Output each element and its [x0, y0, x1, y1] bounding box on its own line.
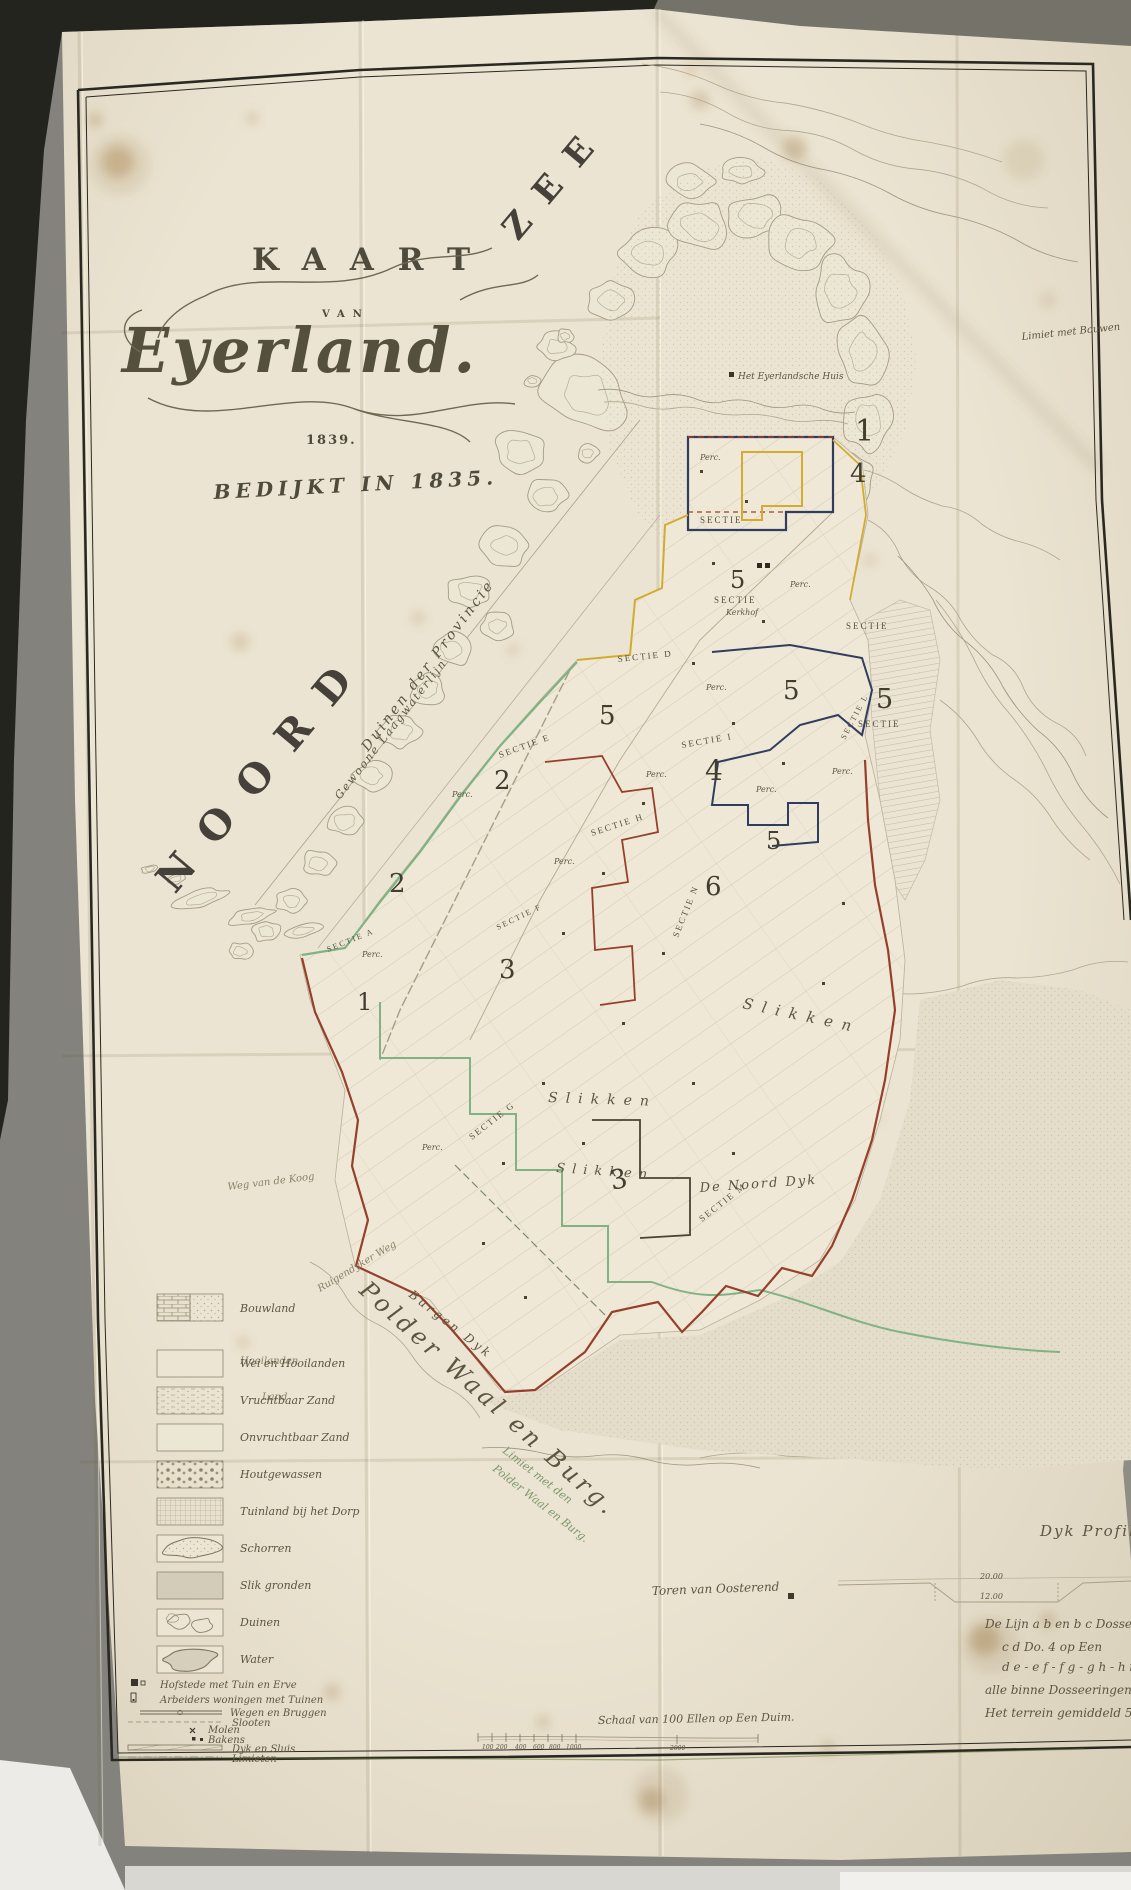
- legend-swatch-onvruchtbaar: [157, 1424, 223, 1451]
- label-eyerlandsche-huis: Het Eyerlandsche Huis: [737, 372, 844, 382]
- legend-label: Schorren: [240, 1542, 292, 1555]
- section-number: 6: [705, 872, 722, 902]
- scale-tick: 600: [533, 1744, 545, 1751]
- legend-label: Water: [240, 1653, 274, 1666]
- profile-value-bottom: 12.00: [980, 1592, 1003, 1601]
- profile-note: De Lijn a b en b c Dosseering 6 op Een: [984, 1617, 1131, 1631]
- scale-tick: 1000: [566, 1744, 581, 1751]
- map-title-kaart: KAART: [252, 242, 494, 278]
- legend-label: Arbeiders woningen met Tuinen: [159, 1695, 323, 1706]
- sectie-label: SECTIE: [858, 719, 901, 729]
- legend-swatch-bouwland: [157, 1294, 223, 1321]
- perc-label: Perc.: [699, 453, 721, 462]
- legend-label: Bouwland: [239, 1302, 295, 1315]
- perc-label: Perc.: [831, 767, 853, 776]
- legend-label: Hofstede met Tuin en Erve: [159, 1680, 297, 1691]
- map-title-name: Eyerland.: [120, 314, 478, 387]
- legend-swatch-wei: [157, 1350, 223, 1377]
- sectie-label: SECTIE: [846, 621, 889, 631]
- backdrop-bottom-white: [840, 1872, 1131, 1890]
- section-number: 5: [766, 827, 781, 855]
- perc-label: Perc.: [789, 580, 811, 589]
- legend-swatch-tuinland: [157, 1498, 223, 1525]
- profile-note: Het terrein gemiddeld 50 dm + V: [984, 1706, 1131, 1720]
- legend-swatch-vruchtbaar: [157, 1387, 223, 1414]
- legend-label: Slik gronden: [240, 1579, 311, 1592]
- profile-note: d e - e f - f g - g h - h i - i k: [1002, 1660, 1131, 1674]
- perc-label: Perc.: [553, 857, 575, 866]
- sectie-sublabel: Kerkhof: [725, 608, 760, 617]
- legend-label: Duinen: [239, 1616, 280, 1629]
- scale-tick: 200: [495, 1744, 508, 1751]
- profile-note: c d Do. 4 op Een: [1002, 1640, 1102, 1654]
- legend-label: Limieten: [231, 1754, 277, 1765]
- perc-label: Perc.: [705, 683, 727, 692]
- scale-tick: 100: [482, 1744, 494, 1751]
- section-number: 4: [705, 754, 723, 787]
- section-number: 5: [876, 684, 893, 715]
- profile-note: alle binne Dosseeringen 2 op Een.: [985, 1683, 1131, 1697]
- legend-label: Wei en Hooilanden: [240, 1357, 345, 1370]
- legend-label: Vruchtbaar Zand: [240, 1394, 335, 1407]
- legend-swatch-slik: [157, 1572, 223, 1599]
- scale-tick: 800: [549, 1744, 561, 1751]
- sectie-label: SECTIE: [714, 595, 757, 605]
- perc-label: Perc.: [451, 790, 473, 799]
- section-number: 1: [357, 988, 372, 1016]
- section-number: 5: [783, 676, 800, 706]
- map-title-year: 1839.: [306, 433, 357, 448]
- legend-label: Tuinland bij het Dorp: [240, 1505, 359, 1518]
- sectie-label: SECTIE: [700, 515, 743, 525]
- perc-label: Perc.: [755, 785, 777, 794]
- antique-map-photo: KAART VAN Eyerland. 1839. BEDIJKT IN 183…: [0, 0, 1131, 1890]
- legend-swatch-houtgewassen: [157, 1461, 223, 1488]
- perc-label: Perc.: [645, 770, 667, 779]
- section-number: 5: [730, 566, 745, 594]
- scale-tick: 2000: [669, 1745, 685, 1752]
- perc-label: Perc.: [421, 1143, 443, 1152]
- scale-tick: 400: [514, 1744, 527, 1751]
- profile-value-top: 20.00: [979, 1572, 1003, 1581]
- section-number: 2: [389, 869, 406, 899]
- section-number: 2: [494, 766, 511, 796]
- toren-symbol: [788, 1593, 794, 1599]
- section-number: 3: [499, 955, 516, 985]
- legend-label: Onvruchtbaar Zand: [240, 1431, 350, 1444]
- eyerlandsche-huis-symbol: [729, 372, 734, 377]
- perc-label: Perc.: [361, 950, 383, 959]
- section-number: 1: [855, 414, 874, 449]
- section-number: 4: [850, 459, 867, 489]
- legend-label: Houtgewassen: [239, 1468, 322, 1481]
- profile-title: Dyk Profil.: [1039, 1522, 1131, 1540]
- section-number: 5: [599, 701, 616, 731]
